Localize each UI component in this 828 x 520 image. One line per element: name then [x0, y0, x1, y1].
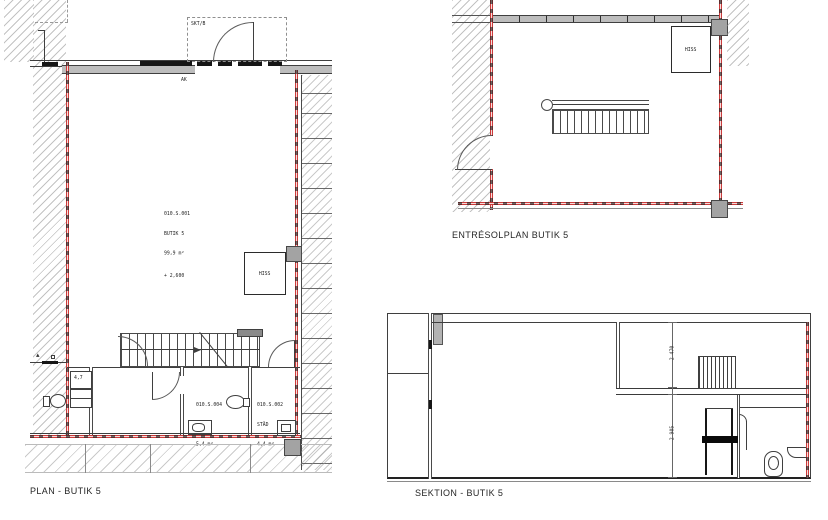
section-dim-tick	[668, 477, 677, 478]
section-stair-landing	[702, 436, 738, 443]
section-stair-rail	[705, 408, 733, 409]
section-dim-tick	[668, 322, 677, 323]
section-toilet-bowl	[768, 456, 779, 470]
section-ceiling-line	[432, 322, 808, 323]
section-sink	[787, 447, 806, 458]
section-shower-riser	[746, 421, 747, 450]
section-dim-tick	[668, 387, 677, 388]
section-wall-fill	[433, 314, 443, 345]
section-drawing: 2 470 2 905 SEKTION - BUTIK 5	[0, 0, 828, 520]
section-dim-lower: 2 905	[669, 426, 674, 440]
section-mezzanine-slab	[616, 388, 809, 395]
section-caption: SEKTION - BUTIK 5	[415, 488, 503, 498]
section-dim-upper: 2 470	[669, 346, 674, 360]
section-floor-line	[387, 481, 811, 482]
drawing-sheet: SKT/B AK 010.S.001 BUTIK 5 99,9 m² + 2,6…	[0, 0, 828, 520]
section-wall-fitting	[429, 400, 432, 409]
section-left-wall	[428, 313, 432, 479]
section-wc-ceiling	[739, 407, 807, 408]
section-wall-fitting	[429, 340, 432, 349]
section-shelf-line	[387, 373, 428, 374]
section-mezzanine-railing	[698, 356, 736, 389]
section-fire-wall-right	[806, 322, 809, 478]
section-mezzanine-wall	[616, 322, 620, 389]
section-dim-tick	[668, 394, 677, 395]
section-outline	[387, 313, 811, 479]
